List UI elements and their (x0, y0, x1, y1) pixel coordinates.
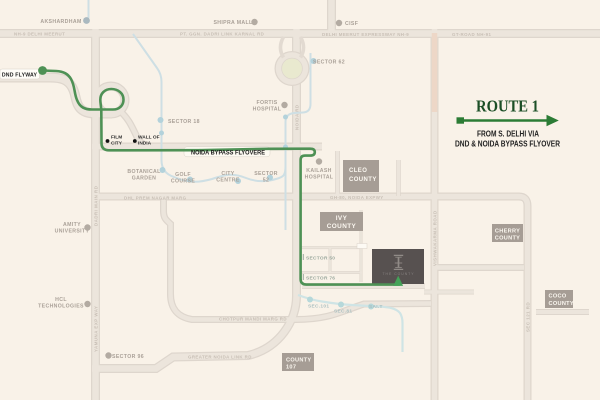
svg-text:YAMUNA EXP WAY: YAMUNA EXP WAY (94, 306, 99, 352)
svg-text:CITY: CITY (221, 171, 234, 177)
svg-text:TECHNOLOGIES: TECHNOLOGIES (38, 304, 84, 310)
svg-text:NOIDA RD: NOIDA RD (295, 104, 300, 130)
svg-text:HCL: HCL (55, 297, 67, 303)
svg-text:BOTANICAL: BOTANICAL (127, 169, 161, 175)
svg-text:SECTOR 18: SECTOR 18 (168, 119, 200, 125)
svg-text:UNIVERSITY: UNIVERSITY (55, 229, 90, 235)
svg-text:SAI.T: SAI.T (369, 304, 383, 310)
svg-text:INDIA: INDIA (138, 140, 152, 146)
svg-text:AKSHARDHAM: AKSHARDHAM (40, 19, 81, 25)
svg-text:GOLF: GOLF (175, 172, 191, 178)
svg-text:DND & NOIDA BYPASS FLYOVER: DND & NOIDA BYPASS FLYOVER (455, 138, 560, 148)
svg-text:AMITY: AMITY (63, 222, 81, 228)
svg-text:DELHI MEERUT EXPRESSWAY NH-9: DELHI MEERUT EXPRESSWAY NH-9 (322, 32, 409, 37)
svg-text:CHOTPUR MANDI MARG RD: CHOTPUR MANDI MARG RD (219, 317, 287, 322)
svg-text:52: 52 (263, 178, 269, 184)
svg-text:SHIPRA MALL: SHIPRA MALL (213, 20, 253, 26)
svg-text:WALL OF: WALL OF (138, 135, 160, 141)
svg-text:SEC.101: SEC.101 (308, 304, 329, 310)
svg-text:COUNTY: COUNTY (549, 301, 574, 307)
svg-text:SECTOR 76: SECTOR 76 (306, 276, 335, 282)
svg-text:PT. GGN. DADRI LINK KARNAL RD: PT. GGN. DADRI LINK KARNAL RD (180, 32, 264, 37)
svg-text:COCO: COCO (549, 294, 567, 300)
svg-text:HOSPITAL: HOSPITAL (305, 175, 334, 181)
svg-text:SECTOR 96: SECTOR 96 (112, 354, 144, 360)
svg-text:FROM S. DELHI VIA: FROM S. DELHI VIA (477, 129, 539, 138)
svg-text:CLEO: CLEO (349, 168, 367, 174)
svg-text:CHERRY: CHERRY (495, 229, 520, 235)
svg-text:GH-80, NOIDA EXPWY: GH-80, NOIDA EXPWY (330, 195, 384, 200)
svg-text:FORTIS: FORTIS (256, 100, 277, 106)
svg-text:FILM: FILM (111, 135, 122, 141)
svg-text:COUNTY: COUNTY (327, 223, 357, 230)
svg-text:CITY: CITY (111, 140, 123, 146)
svg-text:DND FLYWAY: DND FLYWAY (2, 72, 38, 78)
svg-text:107: 107 (286, 365, 296, 371)
svg-text:SECTOR: SECTOR (254, 171, 278, 177)
svg-text:CISF: CISF (345, 21, 358, 27)
svg-text:NH-9 DELHI MEERUT: NH-9 DELHI MEERUT (14, 32, 65, 37)
svg-text:ROUTE 1: ROUTE 1 (476, 97, 539, 116)
svg-text:DHL PREM NAGAR MARG: DHL PREM NAGAR MARG (124, 196, 187, 201)
svg-text:DADRI MAIN RD: DADRI MAIN RD (94, 186, 99, 226)
svg-text:COURSE: COURSE (171, 179, 195, 185)
svg-text:GT-ROAD NH-91: GT-ROAD NH-91 (452, 32, 492, 37)
svg-text:CENTRE: CENTRE (216, 178, 240, 184)
svg-text:SEC 121 RD: SEC 121 RD (526, 302, 531, 332)
svg-text:THE COUNTY: THE COUNTY (382, 272, 414, 276)
svg-text:SECTOR 62: SECTOR 62 (313, 60, 345, 66)
svg-text:SEC.81: SEC.81 (334, 309, 352, 315)
svg-text:COUNTY: COUNTY (286, 358, 311, 364)
svg-text:COUNTY: COUNTY (349, 177, 377, 183)
svg-text:KAILASH: KAILASH (306, 168, 332, 174)
svg-text:VISHWAKARMA ROAD: VISHWAKARMA ROAD (433, 210, 438, 266)
svg-text:COUNTY: COUNTY (495, 236, 520, 242)
svg-text:SECTOR 50: SECTOR 50 (306, 256, 335, 262)
svg-text:IVY: IVY (336, 215, 348, 222)
svg-text:GARDEN: GARDEN (132, 176, 157, 182)
svg-text:GREATER NOIDA LINK RD: GREATER NOIDA LINK RD (188, 354, 252, 359)
svg-text:NOIDA BYPASS FLYOVERE: NOIDA BYPASS FLYOVERE (191, 151, 265, 157)
svg-text:HOSPITAL: HOSPITAL (253, 107, 282, 113)
